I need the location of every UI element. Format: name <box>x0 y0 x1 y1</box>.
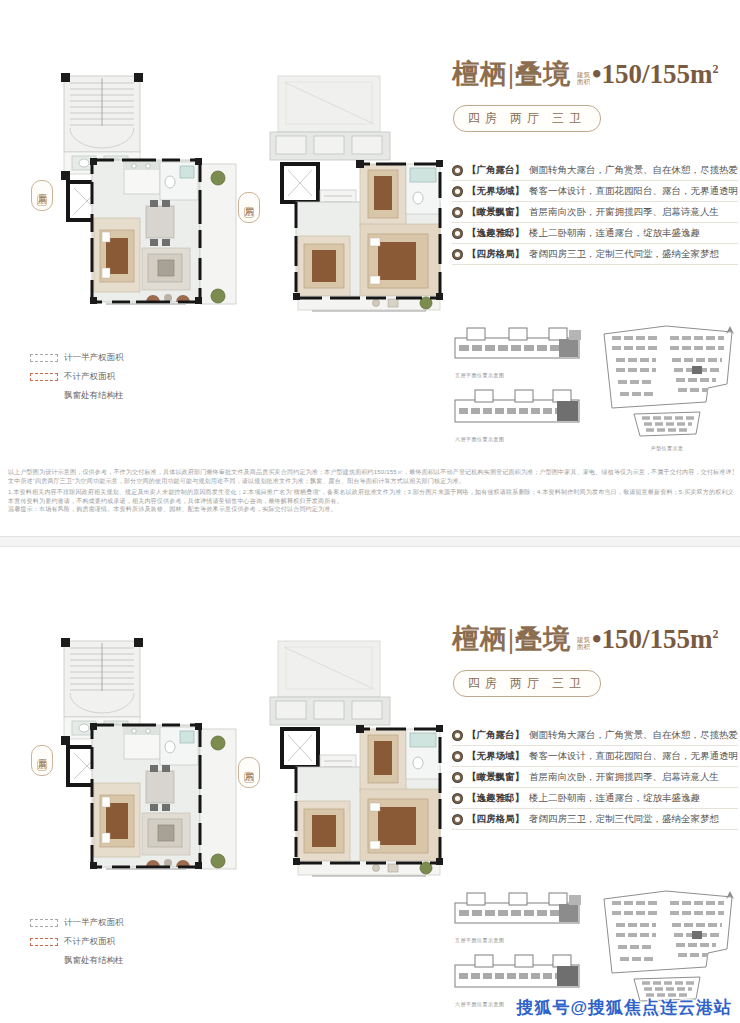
floor-badge-level5-seal: 平 <box>37 195 47 206</box>
floorplan-level5 <box>50 68 238 316</box>
bullet-ring-icon <box>453 250 462 259</box>
area-label: 建筑 面积 <box>577 636 590 650</box>
floorplan-level6-drawing <box>256 72 444 314</box>
feature-text: 首层南向次卧，开窗拥揽四季、启幕诗意人生 <box>529 206 719 219</box>
legend-gray-dashed-box-icon <box>30 919 58 927</box>
bullet-ring-icon <box>453 229 462 238</box>
floor-badge-level6-label: 六层 <box>243 763 256 769</box>
legend-label: 飘窗处有结构柱 <box>64 390 124 402</box>
legend-spacer <box>30 957 58 965</box>
feature-tag: 【四房格局】 <box>467 248 524 261</box>
feature-tag: 【逸趣雅邸】 <box>467 792 524 805</box>
siteplan-drawing <box>596 322 738 438</box>
bullet-ring-icon <box>453 166 462 175</box>
feature-text: 侧面转角大露台，广角赏景、自在休憩，尽揽热爱 <box>529 729 738 742</box>
bullet-ring-icon <box>453 794 462 803</box>
feature-text: 奢阔四房三卫，定制三代同堂，盛纳全家梦想 <box>529 813 719 826</box>
disclaimer-line: 以上户型图为设计示意图，仅供参考，不作为交付标准，具体以政府部门最终审批文件及商… <box>8 468 734 477</box>
disclaimer-line: 文中所述“四房两厅三卫”为空间功能示意，部分空间的使用功能可能与规划用途不同，请… <box>8 477 734 486</box>
area-label-line2: 面积 <box>577 643 590 650</box>
legend-half-property-area: 计一半产权面积 <box>30 917 124 929</box>
legend-label: 不计产权面积 <box>64 371 115 383</box>
panel-bottom: 五层 平 <box>0 569 740 1023</box>
feature-tag: 【瞰景飘窗】 <box>467 771 524 784</box>
legend-non-property-area: 不计产权面积 <box>30 936 124 948</box>
disclaimer-line: 1.本资料相关内容不排除因政府相关规划、规定及出卖人未能控制的原因而发生变化；2… <box>8 488 734 497</box>
floor-badge-level5-label: 五层 <box>36 751 49 757</box>
legend-label: 不计产权面积 <box>64 936 115 948</box>
legend-label: 计一半产权面积 <box>64 917 124 929</box>
floorplan-level5-drawing <box>50 633 238 877</box>
disclaimer-line: 温馨提示：市场有风险，购房需谨慎。本资料所涉及装修、园林、配套等效果示意仅供参考… <box>8 505 734 514</box>
plan-legend: 计一半产权面积 不计产权面积 飘窗处有结构柱 <box>30 917 124 974</box>
feature-item: 【四房格局】 奢阔四房三卫，定制三代同堂，盛纳全家梦想 <box>452 244 738 265</box>
unit-title: 檀栖|叠境 建筑 面积 •150/155m2 <box>452 54 718 89</box>
legend-structural-column-note: 飘窗处有结构柱 <box>30 390 124 402</box>
keyplan-level5-drawing <box>453 887 589 931</box>
sohu-watermark: 搜狐号@搜狐焦点连云港站 <box>516 996 732 1019</box>
area-value: •150/155m2 <box>592 54 718 89</box>
floor-badge-level6-label: 六层 <box>243 198 256 204</box>
unit-name: 檀栖|叠境 <box>452 624 571 654</box>
feature-list: 【广角露台】 侧面转角大露台，广角赏景、自在休憩，尽揽热爱 【无界场域】 餐客一… <box>452 160 738 265</box>
panel-divider <box>0 536 740 547</box>
legend-red-dashed-box-icon <box>30 938 58 946</box>
floor-badge-level5-seal: 平 <box>37 760 47 771</box>
legend-half-property-area: 计一半产权面积 <box>30 352 124 364</box>
siteplan-drawing <box>596 887 738 1003</box>
bullet-ring-icon <box>453 208 462 217</box>
feature-text: 餐客一体设计，直面花园阳台、露台，无界通透明阔 <box>529 750 738 763</box>
floor-badge-level6: 六层 平 <box>238 192 260 223</box>
keyplan-level6-drawing <box>453 951 589 995</box>
bullet-ring-icon <box>453 752 462 761</box>
legend-structural-column-note: 飘窗处有结构柱 <box>30 955 124 967</box>
feature-text: 餐客一体设计，直面花园阳台、露台，无界通透明阔 <box>529 185 738 198</box>
floorplan-level5 <box>50 633 238 881</box>
disclaimer-block: 以上户型图为设计示意图，仅供参考，不作为交付标准，具体以政府部门最终审批文件及商… <box>8 468 734 514</box>
feature-tag: 【四房格局】 <box>467 813 524 826</box>
keyplan-level6-caption: 六层平面位置示意图 <box>455 436 593 442</box>
floor-badge-level6-seal: 平 <box>244 207 254 218</box>
panel-top: 五层 平 <box>0 4 740 534</box>
floor-badge-level6: 六层 平 <box>238 757 260 788</box>
feature-tag: 【广角露台】 <box>467 164 524 177</box>
feature-item: 【瞰景飘窗】 首层南向次卧，开窗拥揽四季、启幕诗意人生 <box>452 767 738 788</box>
floorplan-level6 <box>256 637 444 883</box>
room-type-badge: 四房 两厅 三卫 <box>453 670 601 697</box>
bullet-ring-icon <box>453 731 462 740</box>
floorplan-level6 <box>256 72 444 318</box>
keyplan-level6-drawing <box>453 386 589 430</box>
feature-text: 奢阔四房三卫，定制三代同堂，盛纳全家梦想 <box>529 248 719 261</box>
legend-label: 计一半产权面积 <box>64 352 124 364</box>
bullet-ring-icon <box>453 773 462 782</box>
keyplan-level5-caption: 五层平面位置示意图 <box>455 937 593 943</box>
area-label: 建筑 面积 <box>577 71 590 85</box>
keyplan-level5-drawing <box>453 322 589 366</box>
legend-red-dashed-box-icon <box>30 373 58 381</box>
feature-item: 【无界场域】 餐客一体设计，直面花园阳台、露台，无界通透明阔 <box>452 746 738 767</box>
feature-item: 【广角露台】 侧面转角大露台，广角赏景、自在休憩，尽揽热爱 <box>452 725 738 746</box>
feature-item: 【无界场域】 餐客一体设计，直面花园阳台、露台，无界通透明阔 <box>452 181 738 202</box>
area-label-line2: 面积 <box>577 78 590 85</box>
feature-text: 首层南向次卧，开窗拥揽四季、启幕诗意人生 <box>529 771 719 784</box>
feature-text: 楼上二卧朝南，连通露台，绽放丰盛逸趣 <box>529 792 700 805</box>
legend-label: 飘窗处有结构柱 <box>64 955 124 967</box>
floor-badge-level6-seal: 平 <box>244 772 254 783</box>
disclaimer-line: 本宣传资料为要约邀请，不构成要约或承诺，相关内容仅供参考，具体详情请至销售中心咨… <box>8 497 734 506</box>
feature-text: 楼上二卧朝南，连通露台，绽放丰盛逸趣 <box>529 227 700 240</box>
floorplan-level6-drawing <box>256 637 444 879</box>
area-label-line1: 建筑 <box>577 636 590 643</box>
siteplan-caption: 户型位置示意 <box>596 445 738 451</box>
brochure-page: 五层 平 <box>0 0 740 1023</box>
feature-item: 【逸趣雅邸】 楼上二卧朝南，连通露台，绽放丰盛逸趣 <box>452 223 738 244</box>
area-label-line1: 建筑 <box>577 71 590 78</box>
feature-item: 【四房格局】 奢阔四房三卫，定制三代同堂，盛纳全家梦想 <box>452 809 738 830</box>
bullet-ring-icon <box>453 815 462 824</box>
feature-item: 【逸趣雅邸】 楼上二卧朝南，连通露台，绽放丰盛逸趣 <box>452 788 738 809</box>
floorplan-level5-drawing <box>50 68 238 312</box>
keyplan-level5-caption: 五层平面位置示意图 <box>455 372 593 378</box>
legend-gray-dashed-box-icon <box>30 354 58 362</box>
feature-tag: 【瞰景飘窗】 <box>467 206 524 219</box>
bullet-ring-icon <box>453 187 462 196</box>
feature-item: 【瞰景飘窗】 首层南向次卧，开窗拥揽四季、启幕诗意人生 <box>452 202 738 223</box>
feature-tag: 【广角露台】 <box>467 729 524 742</box>
floor-badge-level5-label: 五层 <box>36 186 49 192</box>
room-type-badge: 四房 两厅 三卫 <box>453 105 601 132</box>
area-value: •150/155m2 <box>592 619 718 654</box>
floor-badge-level5: 五层 平 <box>31 745 53 776</box>
floor-badge-level5: 五层 平 <box>31 180 53 211</box>
feature-tag: 【无界场域】 <box>467 185 524 198</box>
plan-legend: 计一半产权面积 不计产权面积 飘窗处有结构柱 <box>30 352 124 409</box>
feature-tag: 【逸趣雅邸】 <box>467 227 524 240</box>
legend-non-property-area: 不计产权面积 <box>30 371 124 383</box>
feature-item: 【广角露台】 侧面转角大露台，广角赏景、自在休憩，尽揽热爱 <box>452 160 738 181</box>
unit-title: 檀栖|叠境 建筑 面积 •150/155m2 <box>452 619 718 654</box>
siteplan: 户型位置示意 <box>596 322 738 451</box>
feature-tag: 【无界场域】 <box>467 750 524 763</box>
feature-text: 侧面转角大露台，广角赏景、自在休憩，尽揽热爱 <box>529 164 738 177</box>
legend-spacer <box>30 392 58 400</box>
feature-list: 【广角露台】 侧面转角大露台，广角赏景、自在休憩，尽揽热爱 【无界场域】 餐客一… <box>452 725 738 830</box>
keyplan-group: 五层平面位置示意图 六层平面位置示意图 <box>453 322 593 450</box>
unit-name: 檀栖|叠境 <box>452 59 571 89</box>
